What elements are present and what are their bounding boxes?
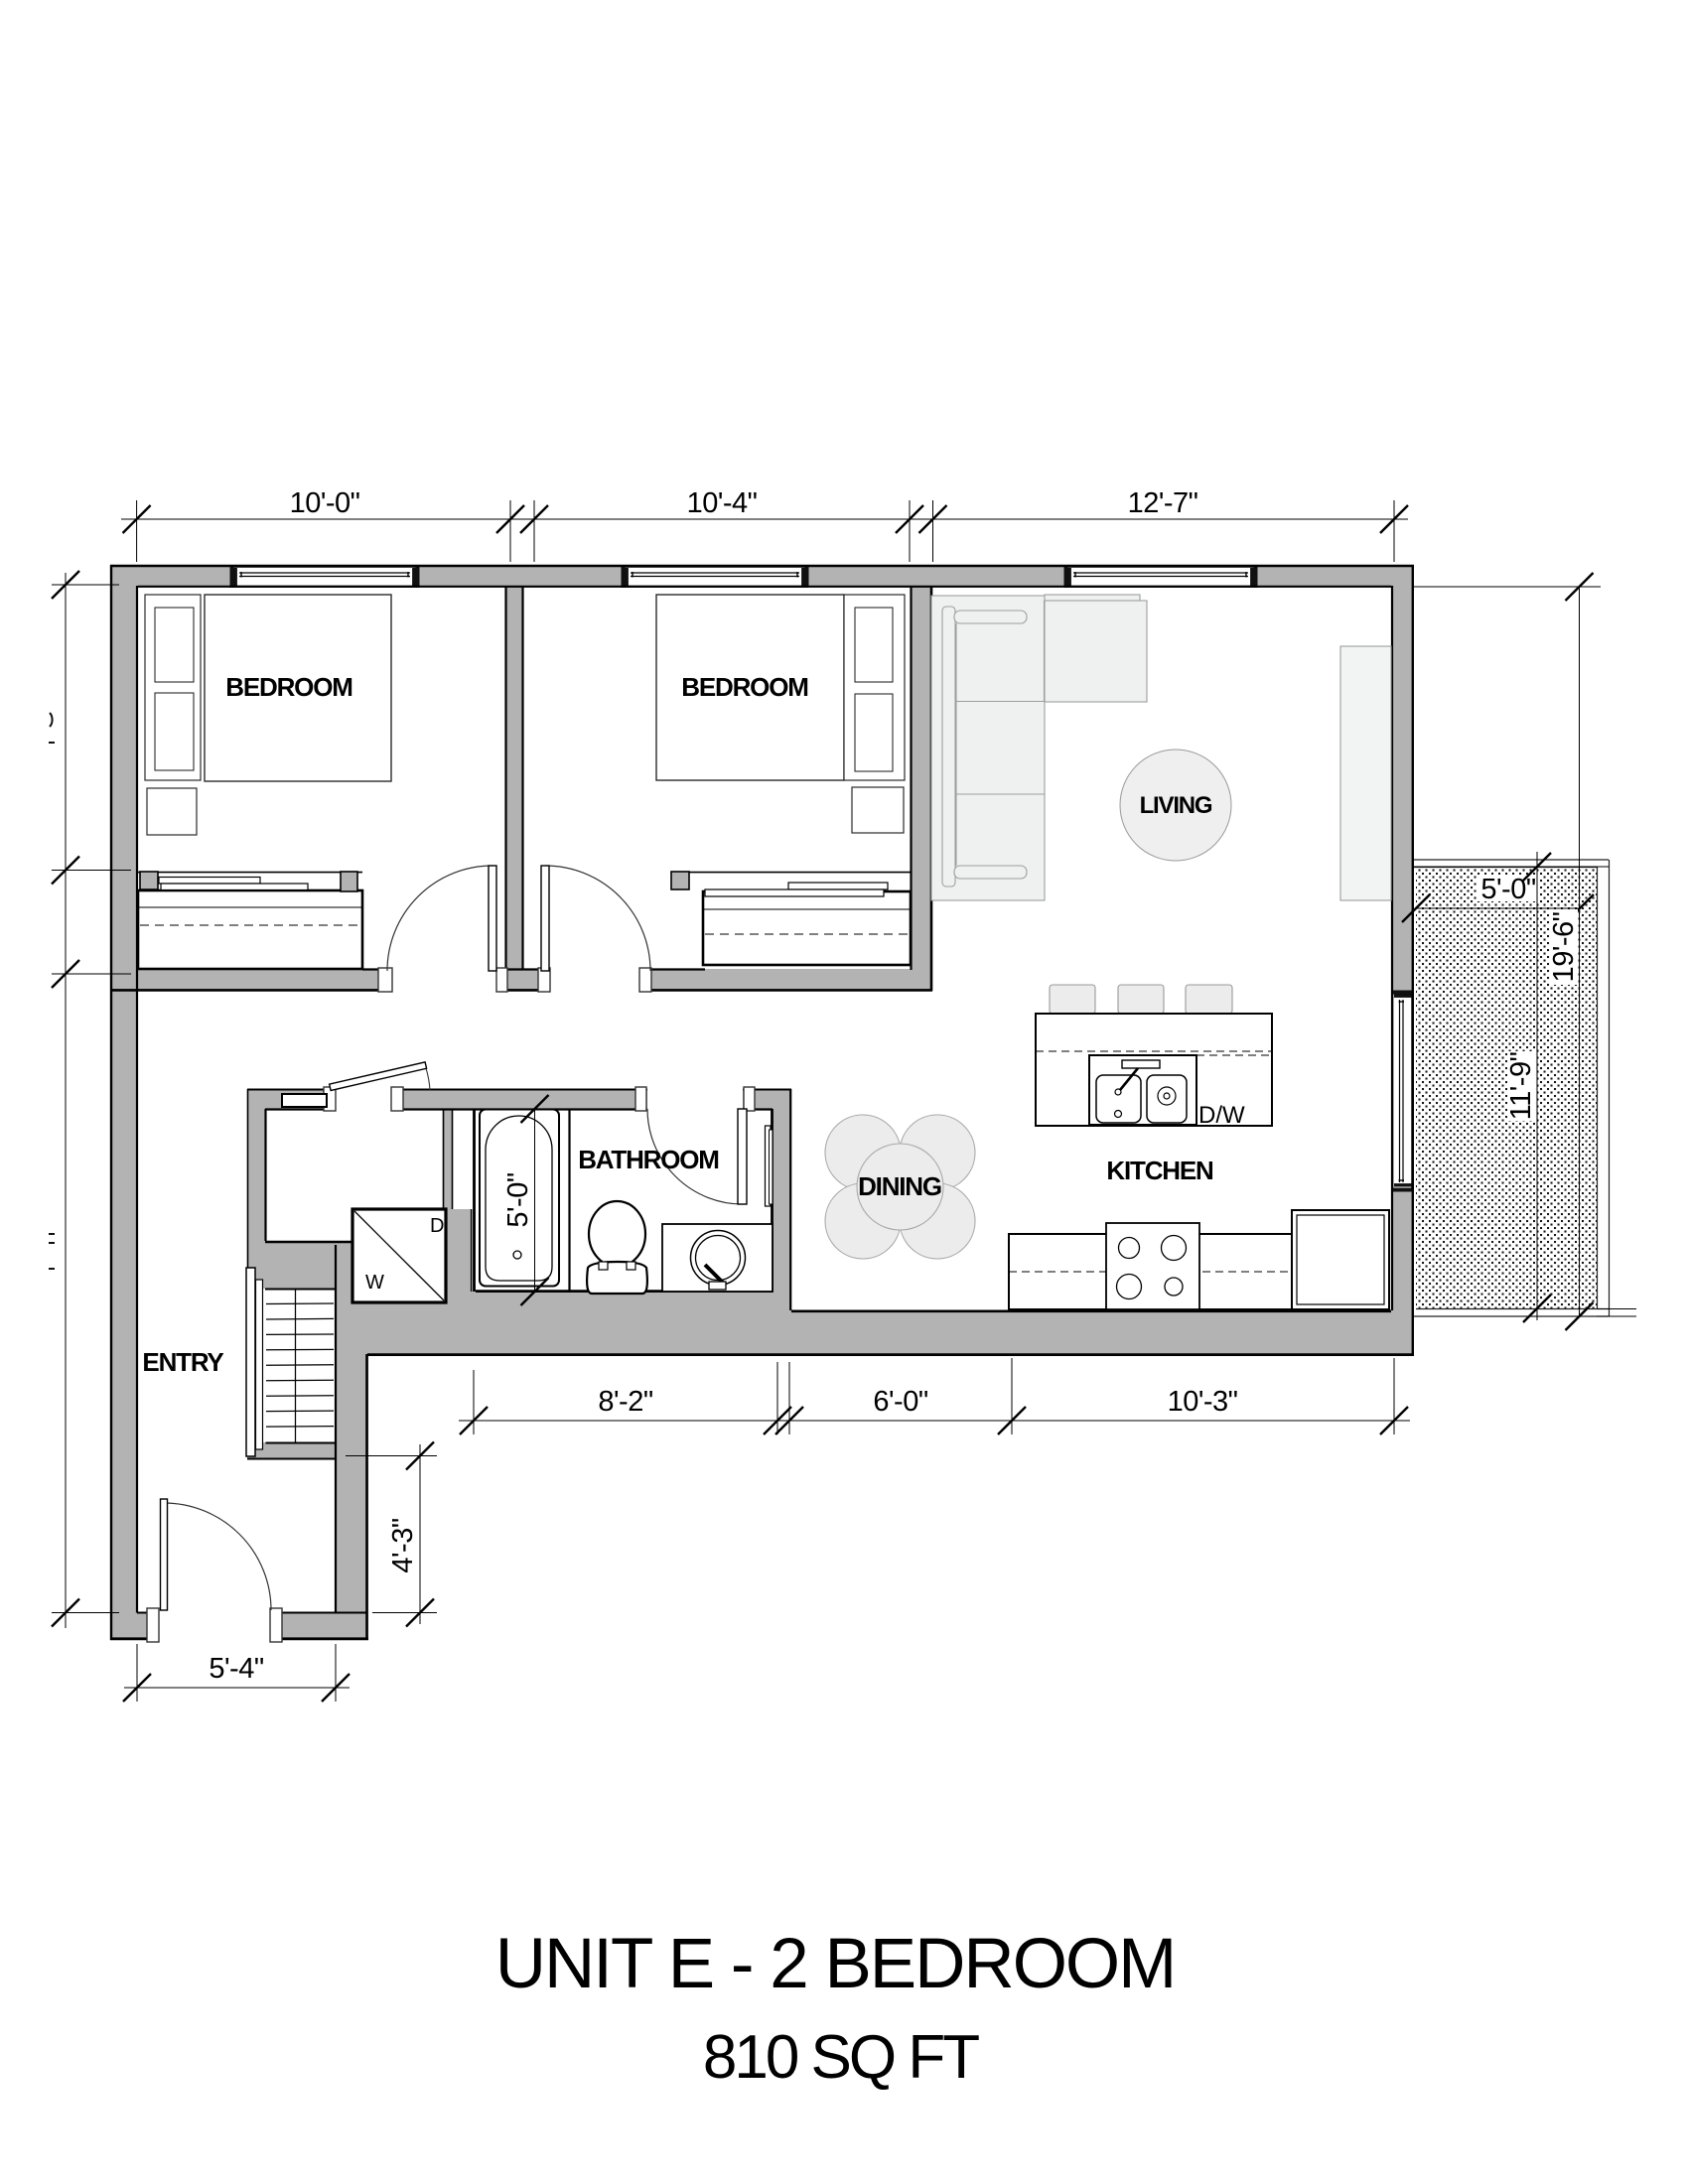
svg-text:ENTRY: ENTRY: [142, 1347, 223, 1377]
svg-text:12'-7": 12'-7": [1128, 487, 1198, 519]
svg-text:D/W: D/W: [1198, 1102, 1245, 1129]
svg-text:8'-2": 8'-2": [598, 1386, 652, 1418]
svg-text:5'-0": 5'-0": [1480, 874, 1535, 905]
svg-text:D: D: [430, 1215, 444, 1237]
svg-text:11'-9": 11'-9": [1505, 1051, 1537, 1120]
svg-text:BEDROOM: BEDROOM: [225, 672, 352, 702]
svg-text:KITCHEN: KITCHEN: [1106, 1156, 1213, 1185]
svg-text:DINING: DINING: [858, 1171, 941, 1201]
svg-text:5'-4": 5'-4": [209, 1653, 263, 1685]
svg-text:UNIT E - 2 BEDROOM: UNIT E - 2 BEDROOM: [495, 1925, 1176, 2003]
svg-text:BEDROOM: BEDROOM: [681, 672, 807, 702]
svg-text:4'-3": 4'-3": [387, 1518, 419, 1572]
svg-text:LIVING: LIVING: [1140, 792, 1212, 819]
svg-text:10'-3": 10'-3": [1168, 1386, 1238, 1418]
svg-text:810 SQ FT: 810 SQ FT: [703, 2023, 979, 2092]
svg-text:10'-0": 10'-0": [290, 487, 360, 519]
svg-text:19'-6": 19'-6": [1548, 911, 1580, 982]
svg-text:5'-0": 5'-0": [502, 1172, 534, 1227]
svg-text:10'-4": 10'-4": [687, 487, 758, 519]
svg-text:6'-0": 6'-0": [873, 1386, 927, 1418]
svg-text:W: W: [365, 1272, 384, 1294]
svg-text:BATHROOM: BATHROOM: [578, 1145, 719, 1174]
